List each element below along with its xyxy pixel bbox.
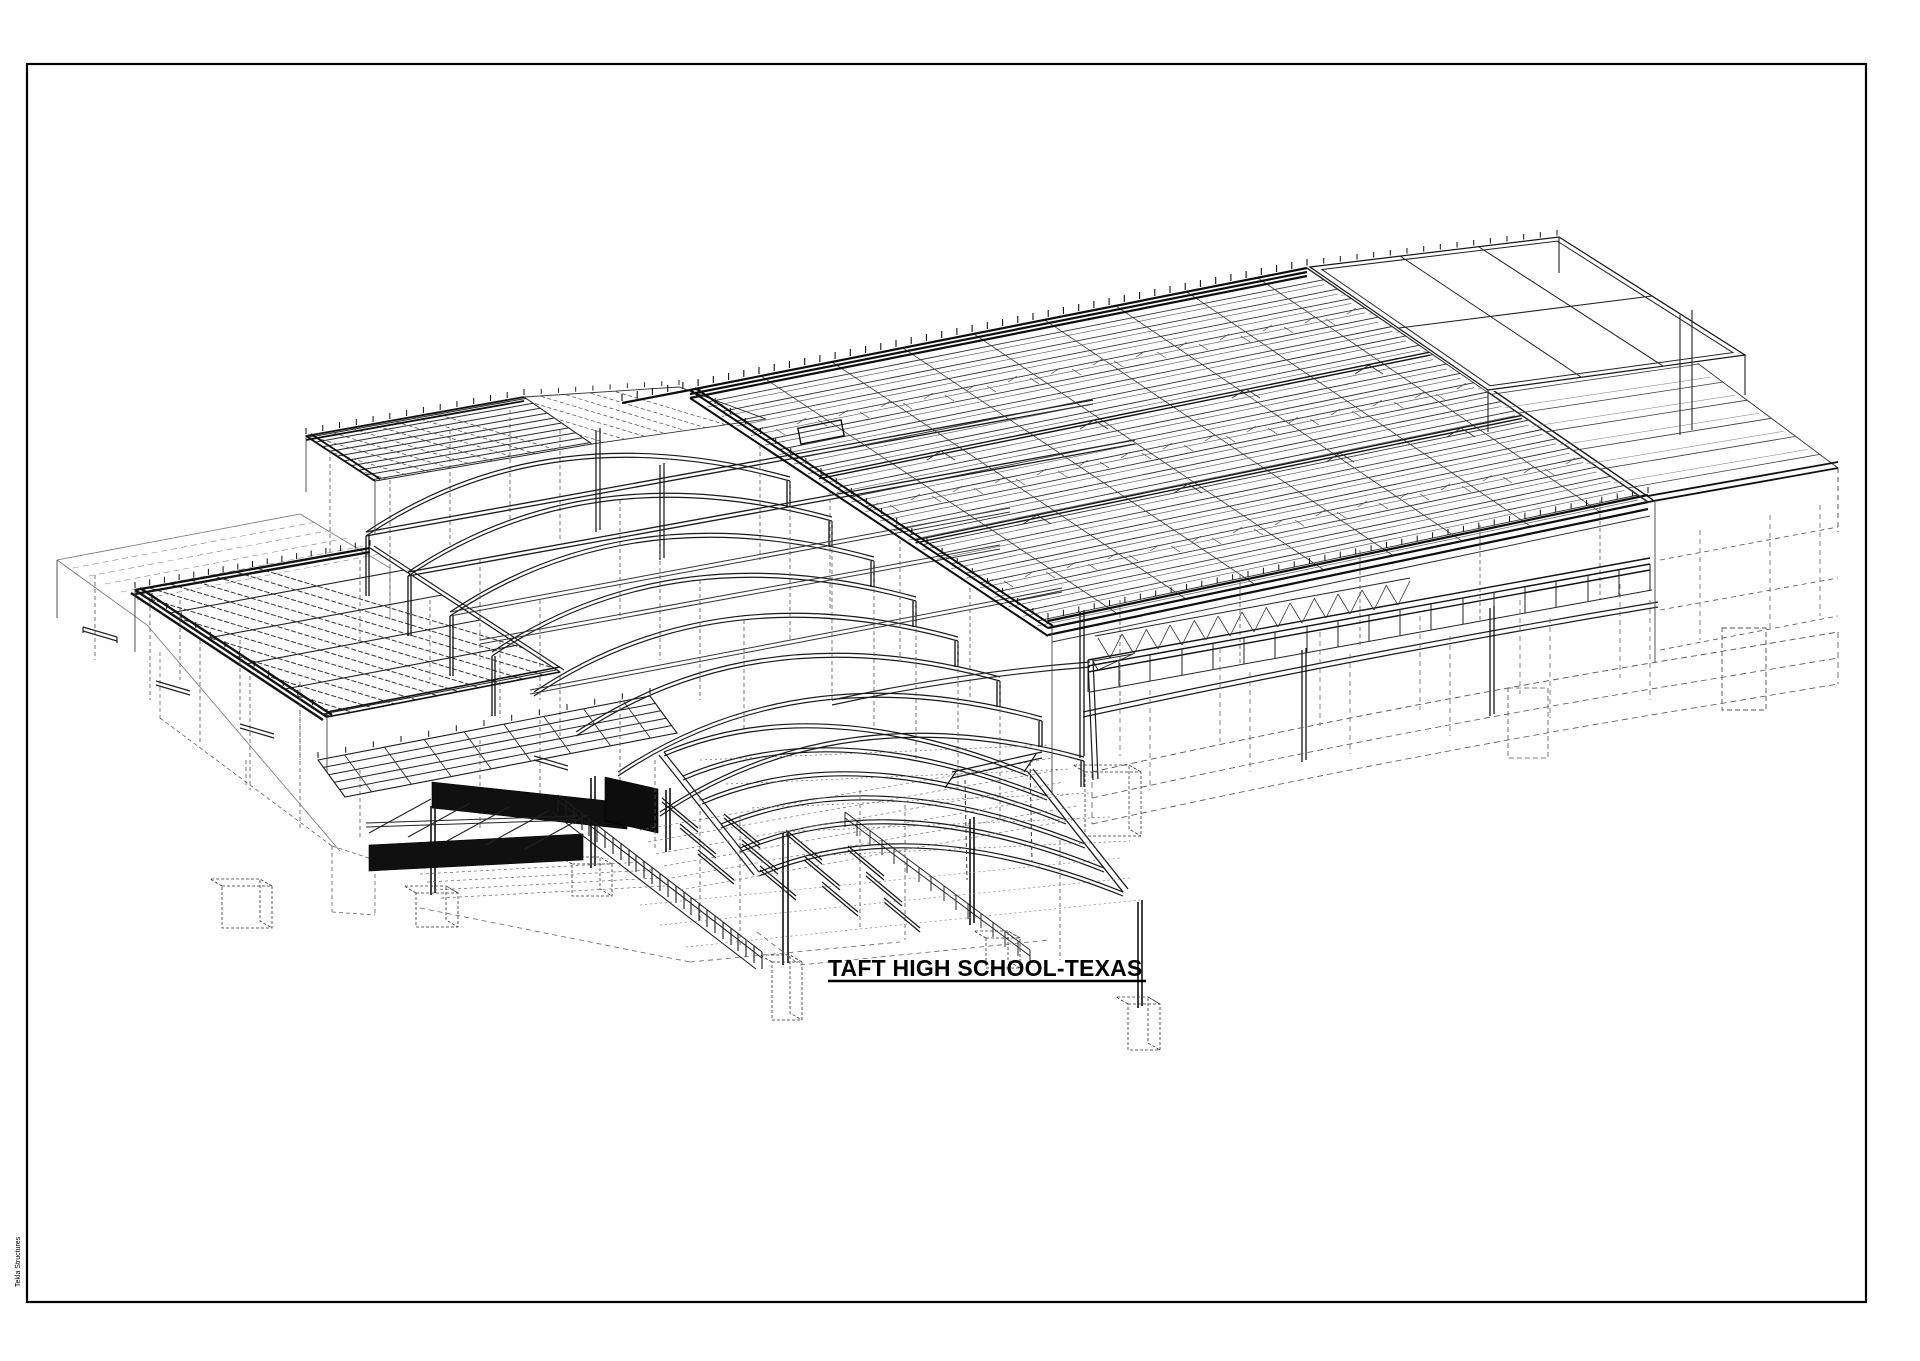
svg-text:TAFT HIGH SCHOOL-TEXAS: TAFT HIGH SCHOOL-TEXAS	[828, 955, 1142, 981]
svg-text:Tekla Structures: Tekla Structures	[15, 1236, 22, 1287]
